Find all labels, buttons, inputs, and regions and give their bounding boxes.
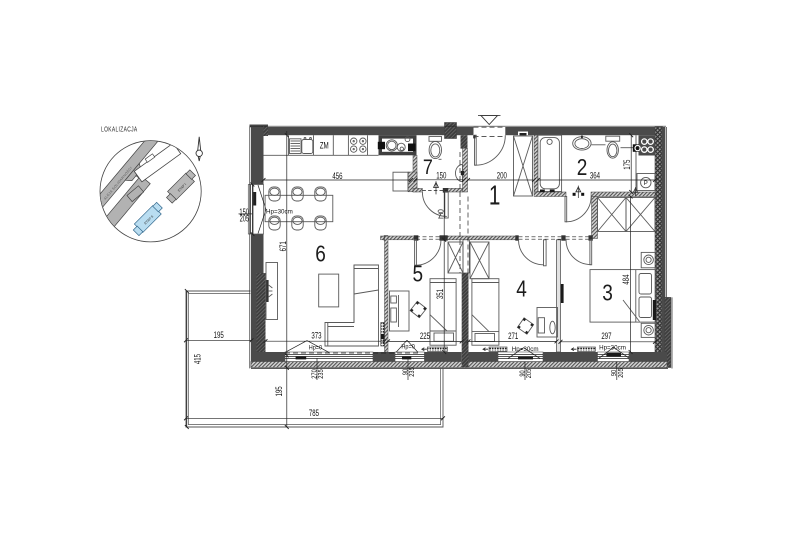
- svg-text:4: 4: [516, 275, 527, 301]
- svg-text:785: 785: [309, 408, 319, 418]
- svg-text:175: 175: [622, 160, 632, 170]
- svg-text:271: 271: [508, 331, 518, 341]
- svg-text:225: 225: [420, 331, 430, 341]
- svg-text:Hp=0: Hp=0: [401, 344, 415, 351]
- svg-text:7: 7: [423, 156, 433, 179]
- svg-text:195: 195: [214, 330, 224, 340]
- svg-text:ZM: ZM: [320, 140, 329, 151]
- svg-text:484: 484: [621, 274, 631, 284]
- svg-text:195: 195: [274, 386, 284, 396]
- svg-text:235: 235: [407, 367, 416, 376]
- svg-text:3: 3: [602, 279, 613, 305]
- svg-text:297: 297: [601, 331, 611, 341]
- svg-text:1: 1: [489, 179, 501, 210]
- svg-text:351: 351: [435, 289, 445, 299]
- svg-text:P: P: [644, 181, 648, 187]
- svg-text:6: 6: [315, 241, 326, 267]
- svg-text:150: 150: [436, 170, 446, 180]
- svg-text:205: 205: [524, 369, 533, 378]
- svg-text:Hp=30cm: Hp=30cm: [599, 344, 626, 351]
- svg-text:373: 373: [311, 331, 321, 341]
- svg-text:5: 5: [413, 261, 424, 287]
- svg-text:415: 415: [193, 354, 203, 364]
- svg-text:671: 671: [278, 241, 288, 251]
- svg-text:205: 205: [240, 213, 250, 223]
- svg-text:235: 235: [316, 369, 325, 378]
- svg-text:Hp=30cm: Hp=30cm: [512, 346, 539, 353]
- svg-text:LOKALIZACJA: LOKALIZACJA: [101, 125, 138, 134]
- svg-text:Hp=30cm: Hp=30cm: [266, 208, 293, 215]
- svg-text:2: 2: [577, 154, 588, 180]
- svg-text:456: 456: [332, 171, 342, 181]
- svg-text:364: 364: [590, 170, 600, 180]
- svg-text:205: 205: [616, 368, 625, 377]
- svg-text:Hp=0: Hp=0: [309, 344, 323, 351]
- svg-text:200: 200: [497, 170, 507, 180]
